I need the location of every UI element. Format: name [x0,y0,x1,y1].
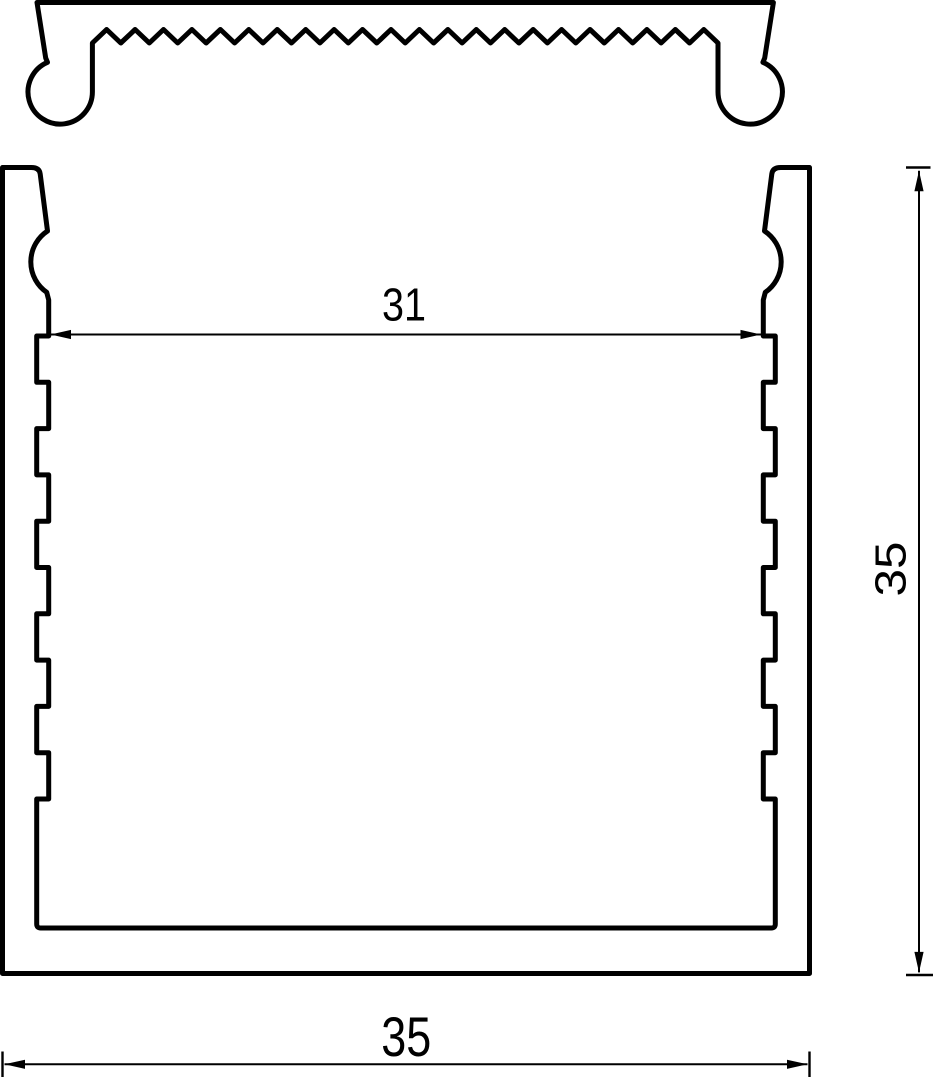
svg-text:35: 35 [867,542,916,597]
svg-text:35: 35 [381,1005,431,1068]
svg-text:31: 31 [382,279,426,331]
